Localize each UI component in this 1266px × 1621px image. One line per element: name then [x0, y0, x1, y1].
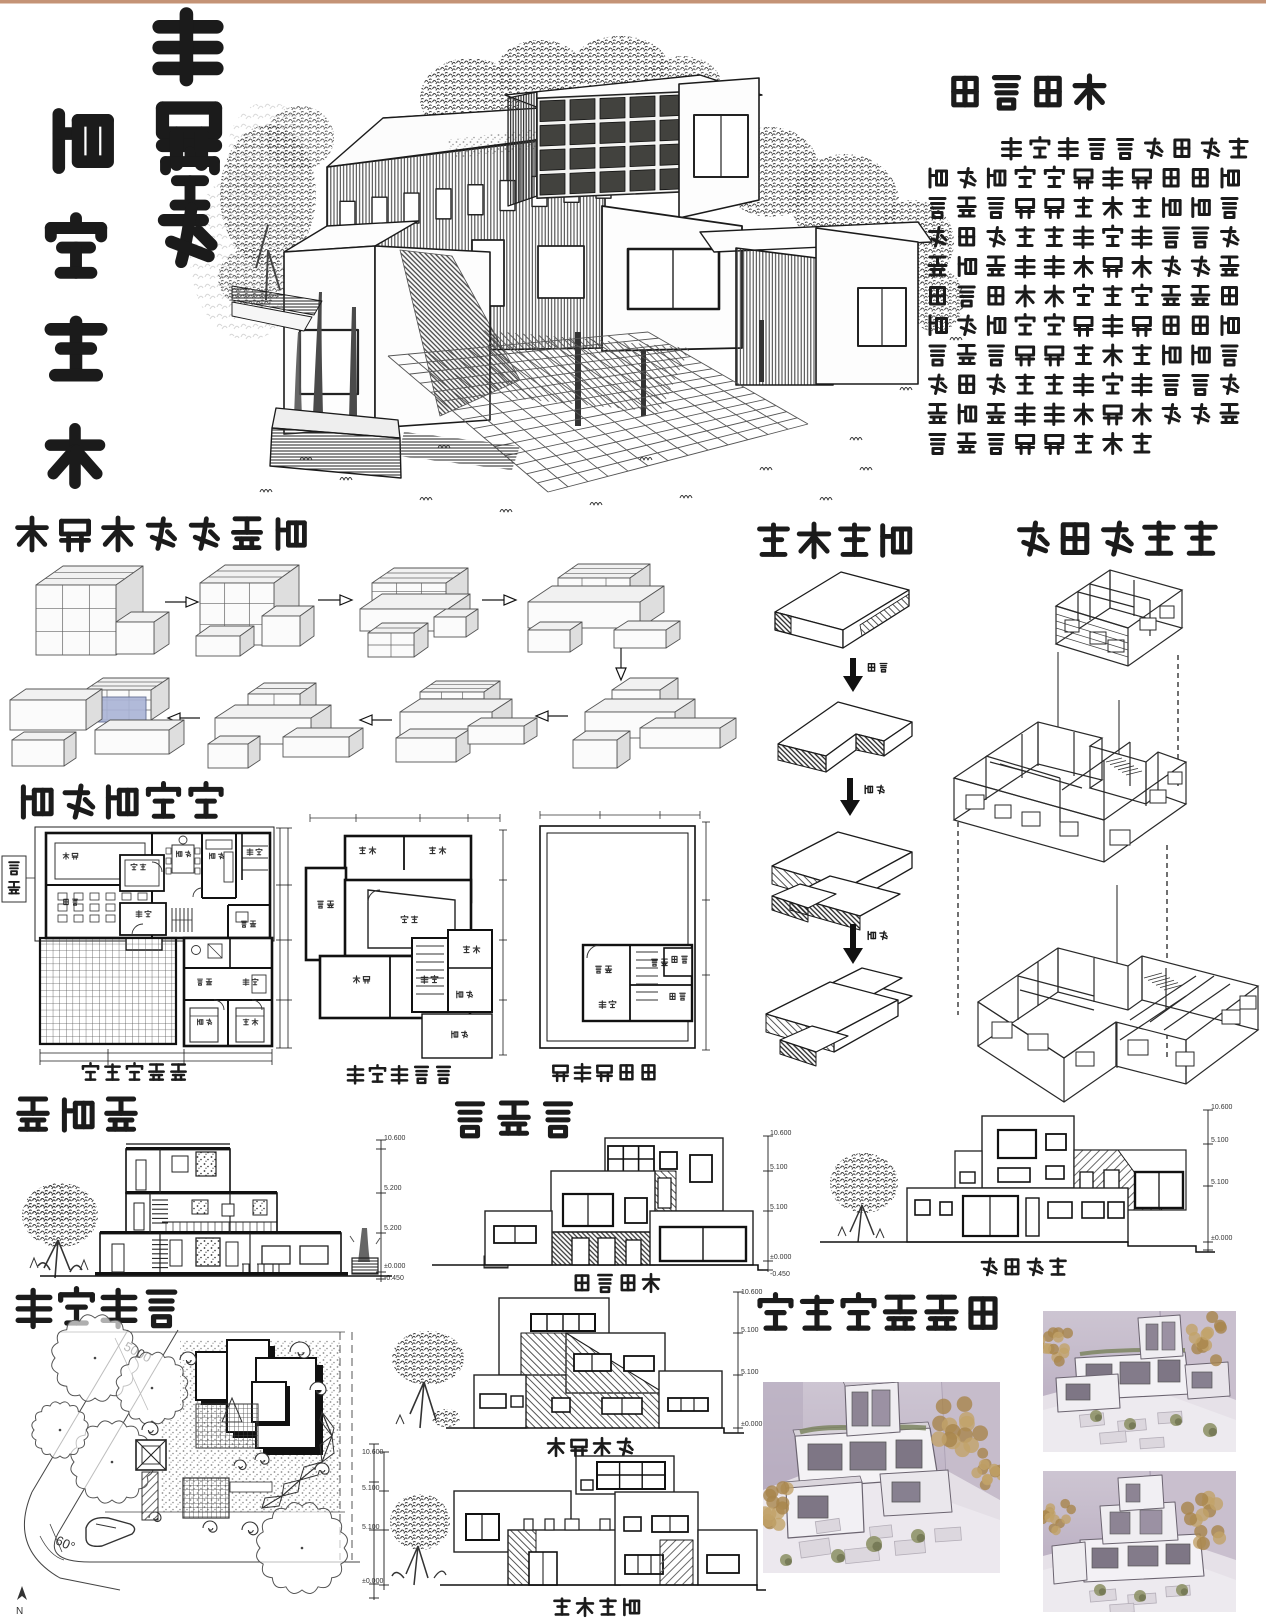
svg-text:10.600: 10.600 — [770, 1130, 792, 1137]
svg-text:5.100: 5.100 — [362, 1524, 380, 1531]
svg-text:10.600: 10.600 — [384, 1135, 406, 1142]
svg-text:±0.000: ±0.000 — [362, 1578, 383, 1585]
svg-text:5.100: 5.100 — [362, 1485, 380, 1492]
svg-text:10.600: 10.600 — [1211, 1104, 1233, 1111]
svg-text:±0.000: ±0.000 — [384, 1263, 405, 1270]
svg-text:±0.000: ±0.000 — [741, 1421, 762, 1428]
svg-text:5.100: 5.100 — [741, 1369, 759, 1376]
svg-text:60°: 60° — [53, 1533, 77, 1555]
svg-text:5.100: 5.100 — [741, 1327, 759, 1334]
svg-text:5.100: 5.100 — [1211, 1179, 1229, 1186]
svg-text:-0.450: -0.450 — [770, 1271, 790, 1278]
svg-text:5.100: 5.100 — [770, 1204, 788, 1211]
svg-text:10.600: 10.600 — [362, 1449, 384, 1456]
svg-text:5.100: 5.100 — [1211, 1137, 1229, 1144]
svg-text:N: N — [16, 1606, 23, 1617]
svg-text:5.200: 5.200 — [384, 1185, 402, 1192]
svg-text:5.100: 5.100 — [770, 1164, 788, 1171]
svg-text:10.600: 10.600 — [741, 1289, 763, 1296]
svg-text:±0.000: ±0.000 — [1211, 1235, 1232, 1242]
svg-text:±0.000: ±0.000 — [770, 1254, 791, 1261]
svg-text:5.200: 5.200 — [384, 1225, 402, 1232]
